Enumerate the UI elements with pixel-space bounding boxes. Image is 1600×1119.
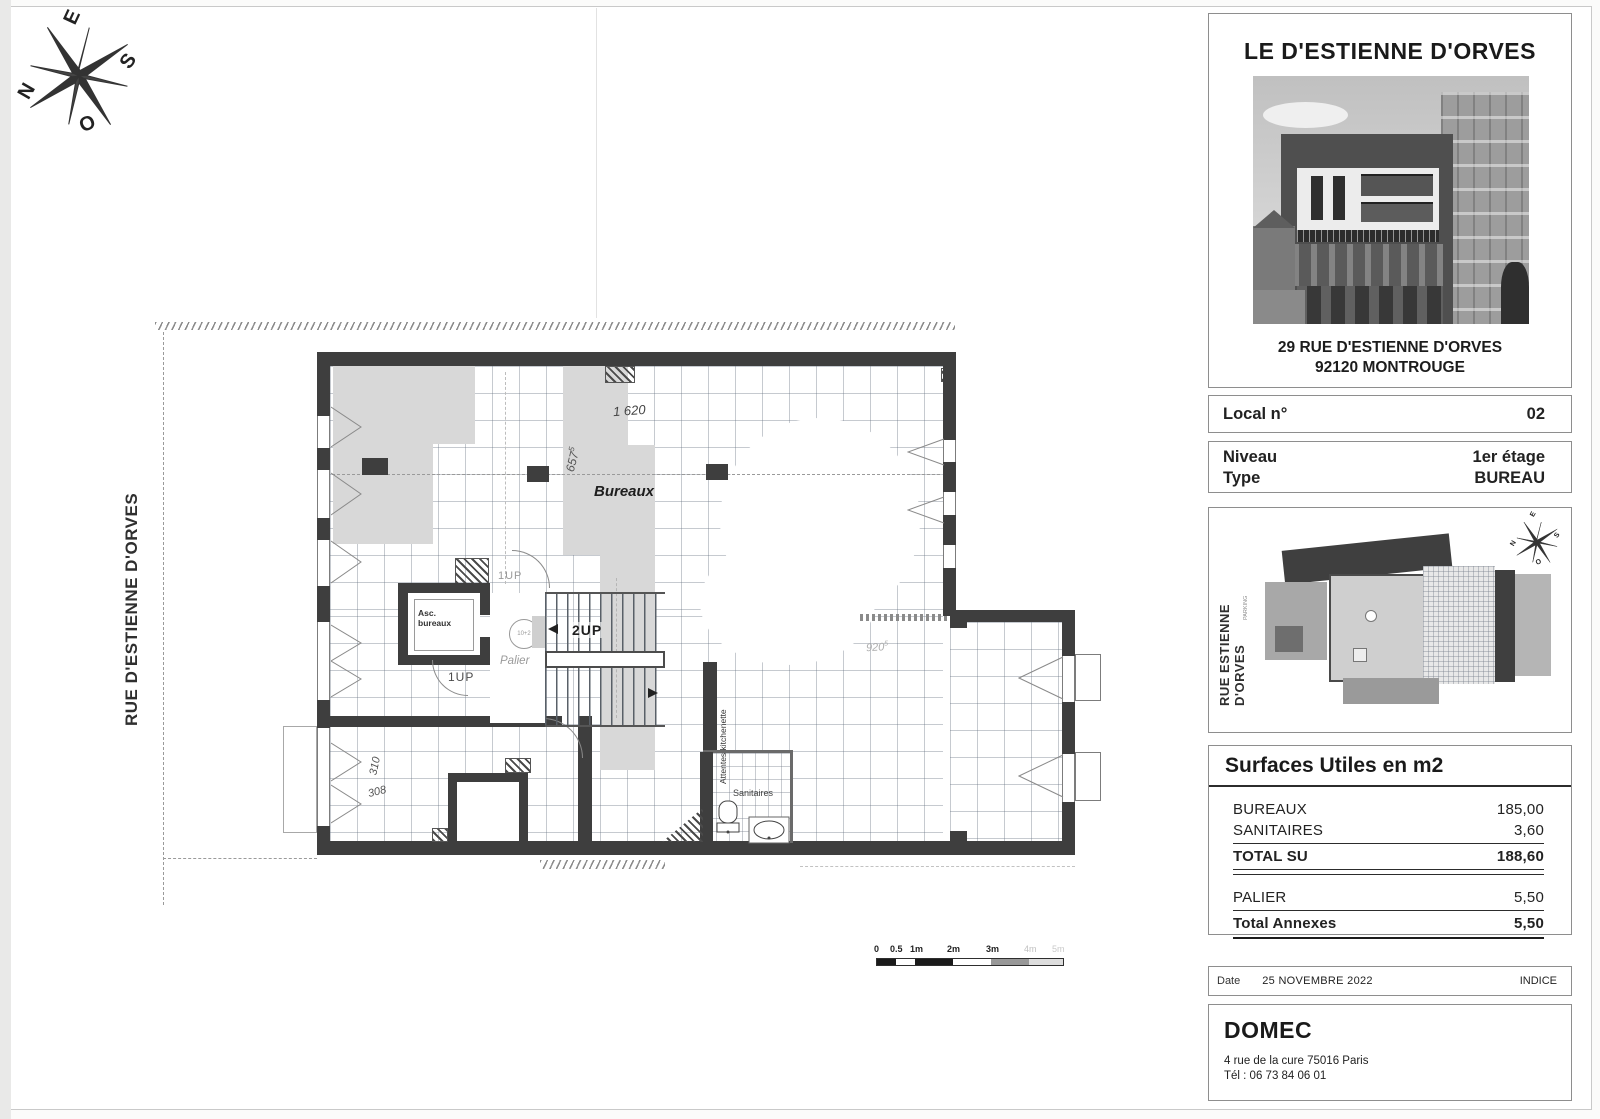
surfaces-row-bureaux: BUREAUX185,00	[1233, 799, 1544, 820]
wall-hatch-block	[432, 828, 448, 842]
boundary-line-left	[163, 332, 164, 905]
room-label-bureaux: Bureaux	[594, 483, 654, 500]
shaft-interior	[457, 782, 519, 841]
lift-wall	[480, 637, 490, 665]
window-casement-icon	[1018, 656, 1064, 700]
sanitaires-label: Sanitaires	[733, 788, 773, 798]
shutter	[1075, 654, 1101, 701]
column	[706, 464, 728, 480]
column	[950, 610, 967, 628]
niveau-label: Niveau	[1223, 447, 1277, 468]
kitchenette-note: Attentes kitchenette	[718, 672, 728, 784]
siteplan-parking-label: PARKING	[1243, 574, 1249, 620]
surfaces-title: Surfaces Utiles en m2	[1209, 746, 1571, 787]
local-value: 02	[1527, 405, 1545, 424]
type-label: Type	[1223, 468, 1260, 489]
stair-arrow-icon	[548, 624, 558, 634]
surfaces-row-total-su: TOTAL SU188,60	[1233, 844, 1544, 869]
window-casement-icon	[331, 472, 363, 516]
wall-segment	[943, 568, 956, 616]
siteplan-block: RUE ESTIENNE D'ORVES PARKING	[1208, 507, 1572, 733]
shaft-wall	[519, 773, 528, 843]
dim-1620: 1 620	[613, 402, 647, 419]
scale-tick-faint: 5m	[1052, 944, 1065, 954]
wall-top	[317, 352, 956, 366]
wall-segment	[1062, 622, 1075, 656]
sanitaires-wall	[790, 750, 793, 843]
wall-segment	[317, 366, 330, 416]
window-casement-icon	[331, 406, 363, 448]
local-row: Local n° 02	[1208, 395, 1572, 433]
firm-phone: Tél : 06 73 84 06 01	[1224, 1069, 1571, 1084]
wall-segment	[943, 366, 956, 440]
date-label: Date	[1217, 975, 1240, 987]
siteplan-street-label: RUE ESTIENNE D'ORVES	[1217, 540, 1247, 706]
double-rule	[1233, 869, 1544, 875]
boundary-hatch-top	[155, 322, 955, 330]
boundary-line-bottom-left	[163, 858, 317, 859]
project-title: LE D'ESTIENNE D'ORVES	[1209, 14, 1571, 65]
axis-line	[505, 372, 506, 584]
window-casement-icon	[907, 438, 945, 466]
address-line2: 92120 MONTROUGE	[1209, 358, 1571, 378]
wall-segment	[1062, 802, 1075, 843]
column	[527, 466, 549, 482]
scale-tick: 2m	[947, 944, 960, 954]
scale-tick: 1m	[910, 944, 923, 954]
scale-tick: 0	[874, 944, 879, 954]
wall-segment	[317, 518, 330, 540]
title-block: LE D'ESTIENNE D'ORVES 29 RUE D'ESTIENNE …	[1208, 13, 1572, 388]
siteplan-compass-icon: E S O N	[1509, 514, 1565, 570]
scale-bar: 0 0.5 1m 2m 3m 4m 5m	[852, 944, 1082, 974]
boundary-hatch-bottom	[540, 860, 665, 869]
scale-tick-faint: 4m	[1024, 944, 1037, 954]
wall-segment	[317, 586, 330, 622]
window-casement-icon	[331, 784, 363, 824]
plan-sheet: E S O N RUE D'ESTIENNE D'ORVES	[0, 0, 1600, 1119]
shaft-wall	[448, 773, 528, 782]
wall-hatch-block	[605, 366, 635, 383]
siteplan-drawing	[1261, 530, 1551, 716]
type-value: BUREAU	[1474, 468, 1545, 489]
sanitaires-wall	[703, 750, 793, 753]
date-value: 25 NOVEMBRE 2022	[1262, 975, 1373, 987]
building-photo	[1253, 76, 1529, 324]
scale-tick: 0.5	[890, 944, 903, 954]
window-casement-icon	[907, 496, 945, 524]
wall-segment	[317, 448, 330, 470]
stair-up-label-bottom: 1UP	[448, 670, 474, 684]
wall-hatch-block	[505, 758, 531, 773]
lift-label: Asc.bureaux	[418, 608, 451, 628]
dim-920: 9205	[866, 640, 889, 654]
wall-partition	[578, 716, 592, 843]
scan-fold-line	[596, 8, 597, 318]
window-casement-icon	[1018, 754, 1064, 798]
boundary-line-bottom-right	[800, 866, 1075, 867]
balcony	[283, 726, 317, 833]
surfaces-block: Surfaces Utiles en m2 BUREAUX185,00 SANI…	[1208, 745, 1572, 935]
stair-arrow-icon	[648, 688, 658, 698]
window-casement-icon	[331, 540, 363, 584]
stair-up-label-mid: 2UP	[572, 622, 602, 638]
niveau-type-block: Niveau 1er étage Type BUREAU	[1208, 441, 1572, 493]
wall-wing-top	[950, 610, 1075, 622]
stair-stringer	[545, 651, 665, 668]
lift-wall	[398, 583, 408, 665]
wall-bottom	[317, 841, 1075, 855]
surfaces-row-total-annexes: Total Annexes5,50	[1233, 911, 1544, 939]
window-casement-icon	[331, 624, 363, 662]
niveau-value: 1er étage	[1473, 447, 1545, 468]
indice-label: INDICE	[1520, 975, 1557, 987]
local-label: Local n°	[1223, 405, 1287, 424]
sill-dashes	[860, 614, 952, 621]
scale-bar-segments	[876, 958, 1064, 966]
firm-block: DOMEC 4 rue de la cure 75016 Paris Tél :…	[1208, 1004, 1572, 1101]
sink-icon	[748, 816, 790, 844]
wall-hatch-block	[455, 558, 489, 584]
street-label: RUE D'ESTIENNE D'ORVES	[122, 448, 142, 726]
surfaces-row-sanitaires: SANITAIRES3,60	[1233, 820, 1544, 844]
axis-line	[332, 474, 940, 475]
palier-label: Palier	[500, 655, 529, 667]
date-block: Date 25 NOVEMBRE 2022 INDICE	[1208, 966, 1572, 996]
firm-name: DOMEC	[1209, 1005, 1571, 1044]
compass-rose: E S O N	[14, 8, 144, 143]
shaft-wall	[448, 773, 457, 843]
address-line1: 29 RUE D'ESTIENNE D'ORVES	[1209, 338, 1571, 358]
lift-wall	[480, 583, 490, 615]
firm-address: 4 rue de la cure 75016 Paris	[1224, 1054, 1571, 1069]
wall-segment	[943, 462, 956, 492]
surfaces-row-palier: PALIER5,50	[1233, 887, 1544, 911]
erased-area	[700, 540, 875, 665]
shutter	[1075, 752, 1101, 801]
scale-tick: 3m	[986, 944, 999, 954]
scan-edge	[0, 0, 11, 1119]
window-casement-icon	[331, 660, 363, 698]
stair-up-label-top: 1UP	[498, 570, 522, 582]
window-casement-icon	[331, 742, 363, 782]
toilet-icon	[716, 800, 740, 836]
wall-segment	[1062, 702, 1075, 754]
column	[362, 458, 388, 475]
lift-wall	[398, 583, 490, 593]
